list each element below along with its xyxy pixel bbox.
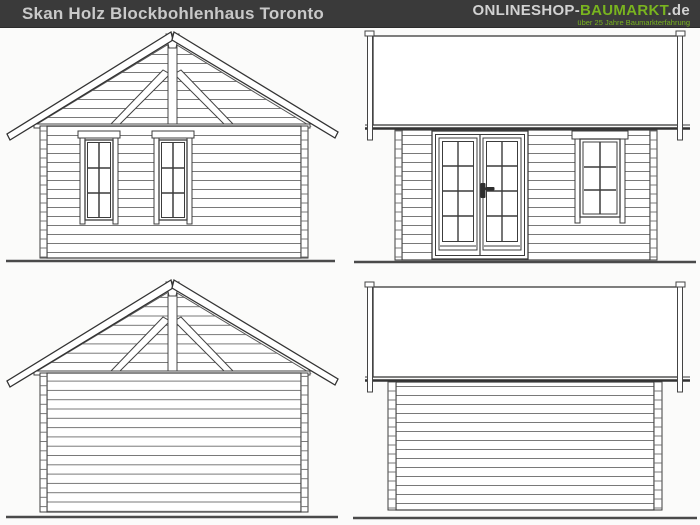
window-front-right	[152, 131, 194, 224]
drawing-canvas	[0, 28, 700, 525]
header-bar: Skan Holz Blockbohlenhaus Toronto ONLINE…	[0, 0, 700, 28]
roof-side	[365, 282, 690, 392]
logo-part-baumarkt: BAUMARKT	[580, 2, 667, 19]
page-title: Skan Holz Blockbohlenhaus Toronto	[22, 4, 324, 24]
front-elevation-drawing	[0, 28, 350, 270]
logo-part-onlineshop: ONLINESHOP-	[473, 2, 580, 19]
logo-tagline: über 25 Jahre Baumarkterfahrung	[473, 19, 690, 27]
window-front-left	[78, 131, 120, 224]
wall-logs	[396, 382, 654, 510]
roof-side	[365, 31, 690, 140]
logo-part-de: .de	[667, 2, 690, 19]
shop-logo: ONLINESHOP-BAUMARKT.de über 25 Jahre Bau…	[473, 1, 690, 27]
product-image-page: Skan Holz Blockbohlenhaus Toronto ONLINE…	[0, 0, 700, 525]
door-side-elevation-drawing	[350, 28, 700, 270]
plain-side-elevation-drawing	[350, 270, 700, 525]
rear-elevation-drawing	[0, 270, 350, 525]
wall-logs	[47, 373, 301, 512]
shop-logo-wordmark: ONLINESHOP-BAUMARKT.de	[473, 3, 690, 18]
window-side	[572, 131, 628, 223]
double-door	[432, 131, 528, 259]
